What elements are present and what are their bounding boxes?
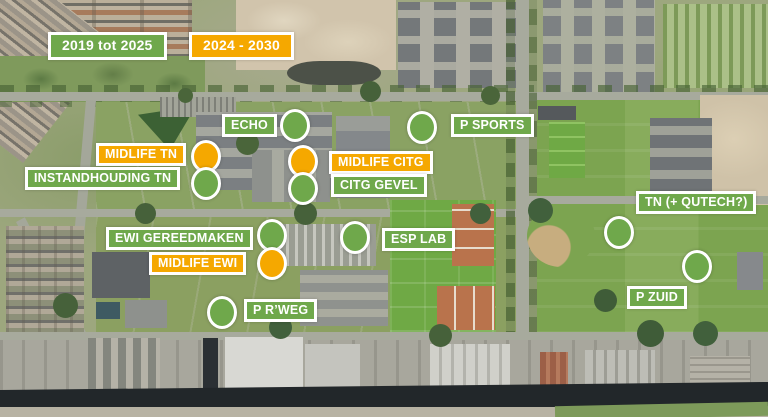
map-label-midlife-ewi: MIDLIFE EWI bbox=[149, 252, 246, 275]
map-label-instandhouding-tn: INSTANDHOUDING TN bbox=[25, 167, 180, 190]
marker-echo-green bbox=[280, 109, 310, 142]
marker-p-zuid-green bbox=[682, 250, 712, 283]
marker-tn-qutech-green bbox=[604, 216, 634, 249]
marker-p-rweg-green bbox=[207, 296, 237, 329]
map-label-midlife-citg: MIDLIFE CITG bbox=[329, 151, 433, 174]
legend-label-legend-2019: 2019 tot 2025 bbox=[48, 32, 167, 60]
marker-instandhouding-tn-green bbox=[191, 167, 221, 200]
map-label-midlife-tn: MIDLIFE TN bbox=[96, 143, 186, 166]
map-label-p-zuid: P ZUID bbox=[627, 286, 687, 309]
legend-label-legend-2024: 2024 - 2030 bbox=[189, 32, 294, 60]
marker-esp-lab-green bbox=[340, 221, 370, 254]
map-label-p-sports: P SPORTS bbox=[451, 114, 534, 137]
marker-midlife-ewi-orange bbox=[257, 247, 287, 280]
map-label-citg-gevel: CITG GEVEL bbox=[331, 174, 427, 197]
map-label-p-rweg: P R’WEG bbox=[244, 299, 317, 322]
marker-citg-gevel-green bbox=[288, 172, 318, 205]
map-label-tn-qutech: TN (+ QUTECH?) bbox=[636, 191, 756, 214]
map-label-ewi-gereedmaken: EWI GEREEDMAKEN bbox=[106, 227, 253, 250]
map-label-echo: ECHO bbox=[222, 114, 277, 137]
campus-map-slide: 2019 tot 20252024 - 2030ECHOP SPORTSMIDL… bbox=[0, 0, 768, 417]
annotation-layer: 2019 tot 20252024 - 2030ECHOP SPORTSMIDL… bbox=[0, 0, 768, 417]
map-label-esp-lab: ESP LAB bbox=[382, 228, 455, 251]
marker-p-sports-green bbox=[407, 111, 437, 144]
